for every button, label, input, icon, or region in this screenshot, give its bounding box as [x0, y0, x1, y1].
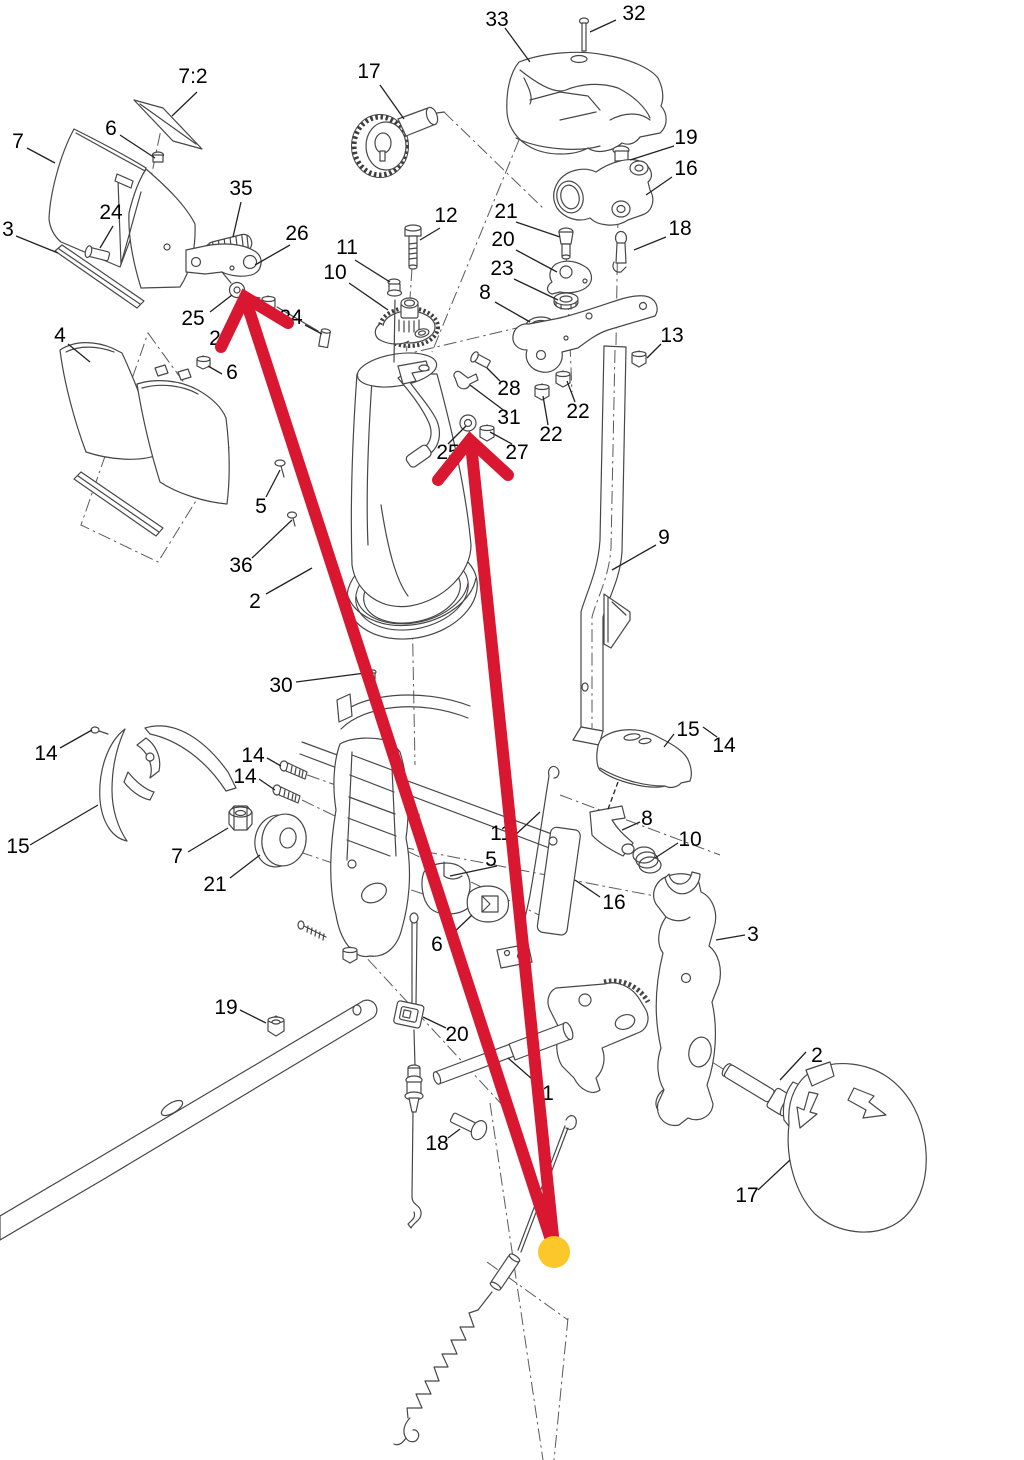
- svg-text:9: 9: [658, 526, 670, 549]
- svg-text:17: 17: [735, 1184, 758, 1207]
- svg-text:6: 6: [105, 117, 117, 140]
- svg-text:2: 2: [811, 1044, 823, 1067]
- svg-text:12: 12: [434, 204, 457, 227]
- svg-text:35: 35: [229, 177, 252, 200]
- svg-text:2: 2: [249, 590, 261, 613]
- svg-text:19: 19: [214, 996, 237, 1019]
- svg-text:28: 28: [497, 377, 520, 400]
- svg-text:8: 8: [479, 281, 491, 304]
- svg-text:14: 14: [241, 744, 265, 767]
- svg-text:16: 16: [602, 891, 625, 914]
- svg-text:18: 18: [425, 1132, 448, 1155]
- svg-text:7:2: 7:2: [178, 65, 207, 88]
- svg-text:22: 22: [539, 423, 562, 446]
- svg-text:3: 3: [747, 923, 759, 946]
- svg-text:14: 14: [233, 765, 257, 788]
- svg-text:6: 6: [431, 933, 443, 956]
- svg-text:13: 13: [660, 324, 683, 347]
- svg-text:36: 36: [229, 554, 252, 577]
- svg-text:14: 14: [712, 734, 736, 757]
- svg-text:6: 6: [226, 361, 238, 384]
- svg-text:15: 15: [6, 835, 29, 858]
- svg-text:19: 19: [674, 126, 697, 149]
- svg-text:30: 30: [269, 674, 292, 697]
- svg-text:27: 27: [505, 441, 528, 464]
- svg-text:18: 18: [668, 217, 691, 240]
- svg-text:4: 4: [54, 324, 66, 347]
- svg-text:20: 20: [491, 228, 514, 251]
- svg-text:3: 3: [2, 218, 14, 241]
- svg-text:16: 16: [674, 157, 697, 180]
- svg-text:8: 8: [641, 807, 653, 830]
- svg-text:15: 15: [676, 718, 699, 741]
- svg-text:23: 23: [490, 257, 513, 280]
- svg-text:5: 5: [485, 848, 497, 871]
- svg-text:10: 10: [678, 828, 701, 851]
- svg-text:22: 22: [566, 400, 589, 423]
- svg-text:20: 20: [445, 1023, 468, 1046]
- svg-text:21: 21: [203, 873, 226, 896]
- svg-text:7: 7: [12, 130, 24, 153]
- svg-text:25: 25: [181, 307, 204, 330]
- svg-text:32: 32: [622, 2, 645, 25]
- svg-text:5: 5: [255, 495, 267, 518]
- svg-text:10: 10: [323, 261, 346, 284]
- svg-text:33: 33: [485, 8, 508, 31]
- svg-text:31: 31: [497, 406, 520, 429]
- svg-text:17: 17: [357, 60, 380, 83]
- svg-text:26: 26: [285, 222, 308, 245]
- svg-text:21: 21: [494, 200, 517, 223]
- svg-text:11: 11: [336, 236, 358, 259]
- svg-text:14: 14: [34, 742, 58, 765]
- svg-text:24: 24: [99, 201, 123, 224]
- svg-text:7: 7: [171, 845, 183, 868]
